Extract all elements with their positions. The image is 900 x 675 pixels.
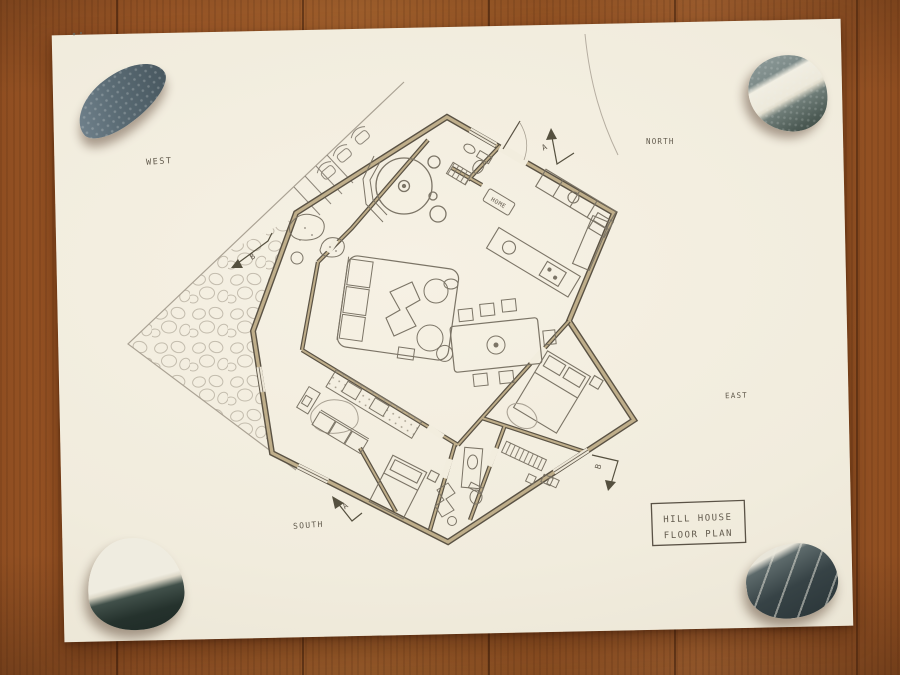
compass-north: NORTH <box>646 137 675 146</box>
section-label: A <box>540 142 548 152</box>
entry-door-leaf <box>503 121 520 149</box>
photo-of-floor-plan: HOME <box>0 0 900 675</box>
section-marker-bottom: A <box>332 496 362 521</box>
sectional-sofa <box>312 410 369 453</box>
closet-hatch <box>446 162 472 184</box>
pencil-sketch-curve <box>585 34 618 155</box>
section-label: B <box>593 463 603 470</box>
title-block: HILL HOUSE FLOOR PLAN <box>651 500 745 545</box>
pencil-corner-dots <box>73 32 82 35</box>
arrowhead <box>605 480 616 491</box>
doormat-label: HOME <box>489 196 507 210</box>
sink-symbol <box>467 455 478 470</box>
desk-symbol <box>297 387 321 414</box>
compass-east: EAST <box>725 391 748 401</box>
compass-west: WEST <box>146 156 173 168</box>
compass-south: SOUTH <box>293 520 324 531</box>
arrowhead <box>546 128 557 140</box>
nightstand-symbol <box>589 376 603 390</box>
entry-door-swing <box>520 123 527 160</box>
sofa-symbol <box>337 257 373 344</box>
house-walls <box>253 117 634 542</box>
bed-symbol <box>514 351 591 433</box>
east-bedroom-furniture <box>503 348 603 440</box>
section-marker-right: B <box>592 455 618 491</box>
bathroom-vanity-counter <box>326 370 422 439</box>
stool-symbol <box>430 206 446 222</box>
entry-bathroom <box>446 142 492 190</box>
sink-symbol <box>462 142 476 155</box>
sink-symbol <box>500 239 518 257</box>
zigzag-coffee-table <box>386 282 420 336</box>
ottoman-symbol <box>397 347 414 360</box>
kitchen-island <box>487 228 581 298</box>
nightstand-symbol <box>427 470 439 482</box>
title-line-1: HILL HOUSE <box>663 513 732 525</box>
title-line-2: FLOOR PLAN <box>664 529 733 541</box>
rock-garden-blobs <box>289 214 344 264</box>
living-room-furniture <box>336 255 460 362</box>
section-marker-top: A <box>540 128 574 164</box>
side-table-symbol <box>428 156 440 168</box>
kitchen-furniture <box>487 169 617 297</box>
section-label: A <box>341 501 350 511</box>
walk-in-closet <box>495 441 559 491</box>
entry-doormat: HOME <box>483 188 516 215</box>
closet-rail-hatch <box>502 441 547 470</box>
south-bedroom-furniture <box>369 452 439 525</box>
south-bathroom <box>435 447 484 525</box>
